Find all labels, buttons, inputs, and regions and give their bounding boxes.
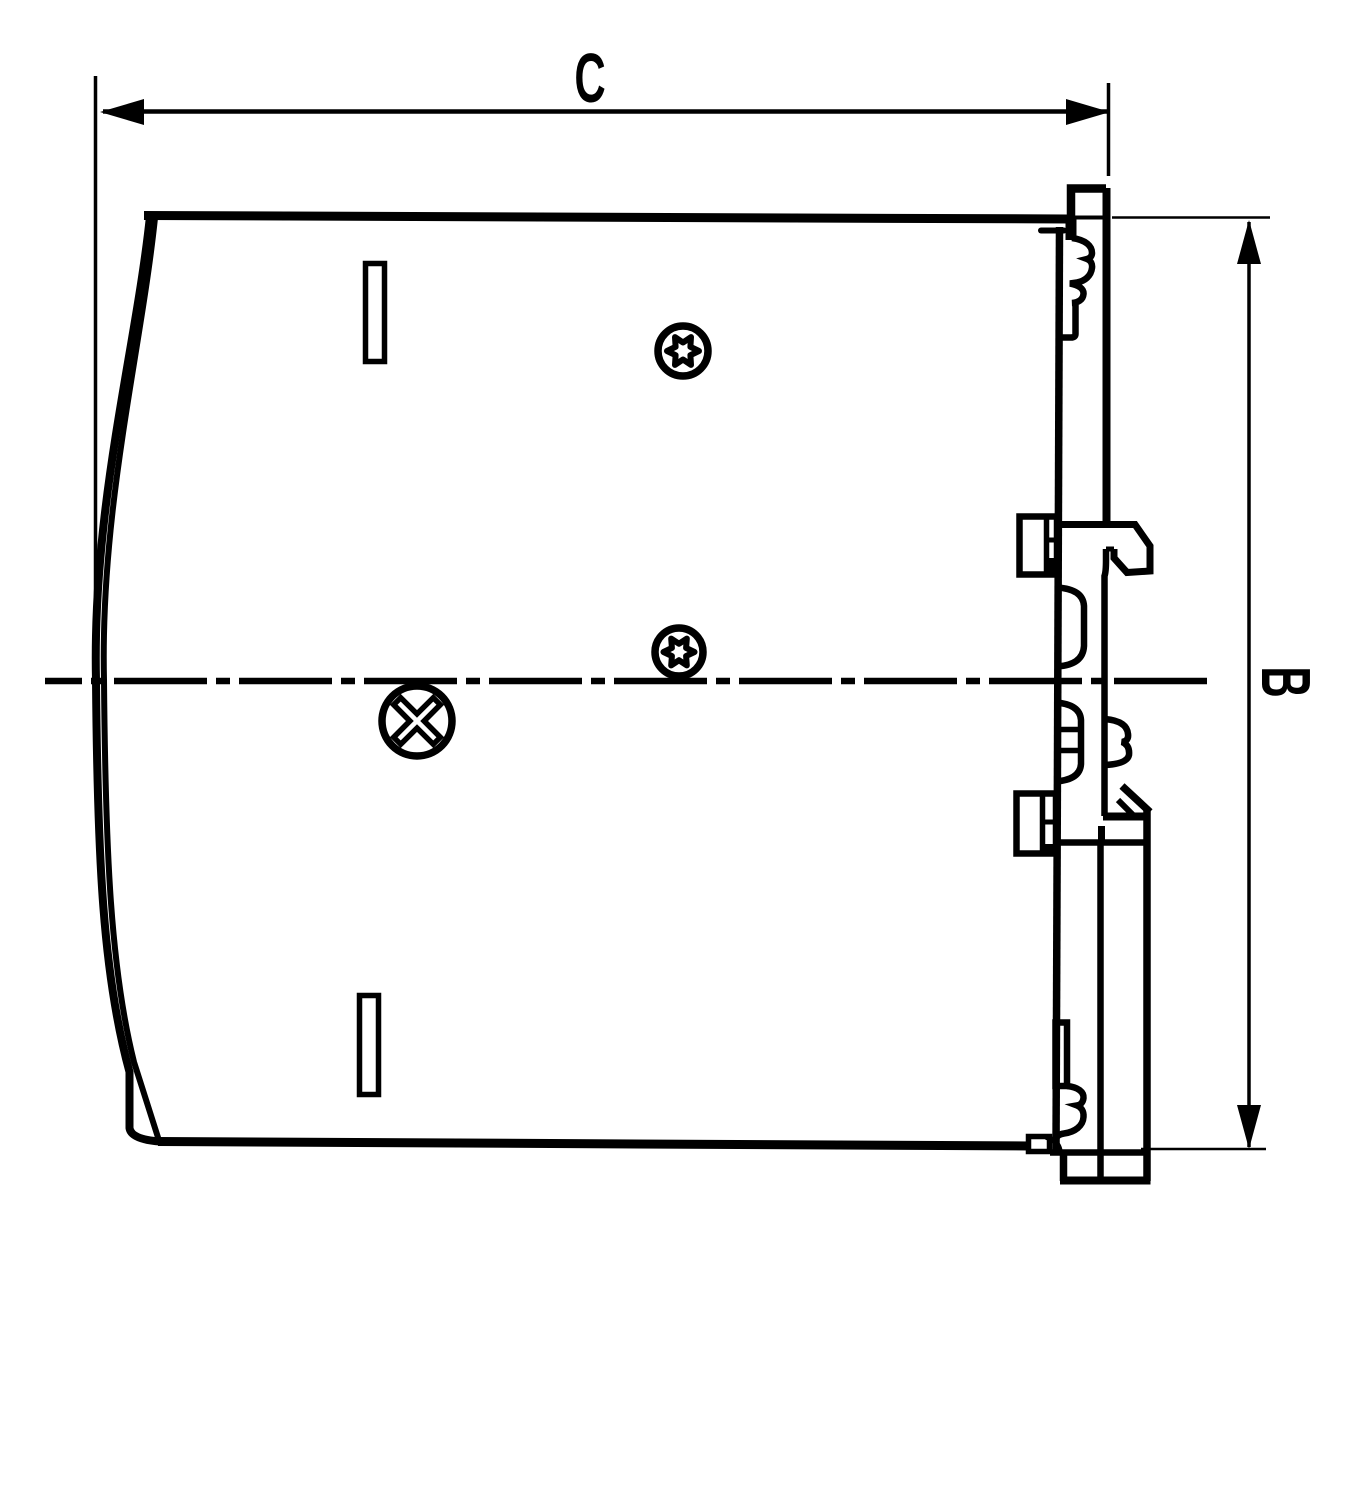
svg-text:C: C [574, 39, 605, 117]
svg-text:B: B [1246, 666, 1324, 697]
